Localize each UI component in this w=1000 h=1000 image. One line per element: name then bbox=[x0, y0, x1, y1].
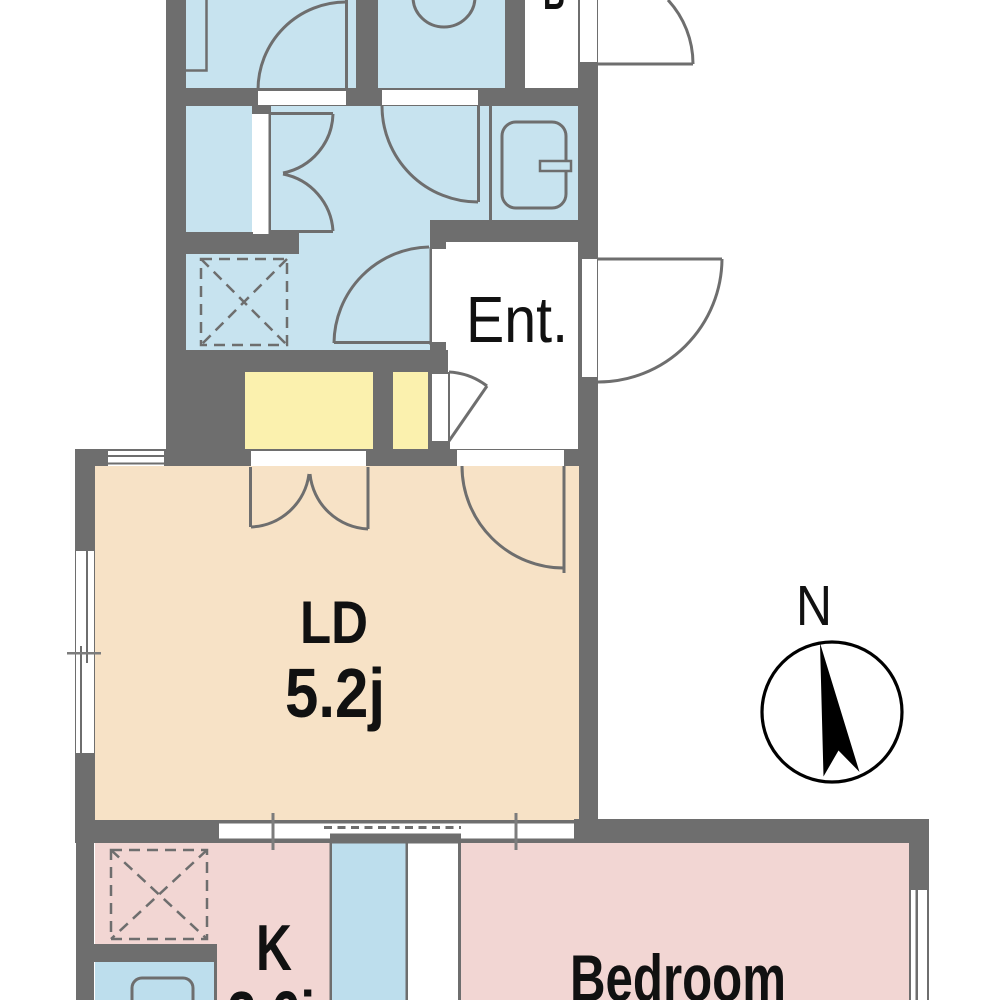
svg-text:Ent.: Ent. bbox=[466, 283, 568, 356]
svg-text:Bedroom: Bedroom bbox=[570, 941, 786, 1000]
svg-text:B: B bbox=[543, 0, 565, 19]
svg-text:2.6j: 2.6j bbox=[227, 977, 315, 1000]
svg-text:K: K bbox=[256, 911, 292, 984]
svg-text:N: N bbox=[796, 574, 832, 638]
svg-text:LD: LD bbox=[300, 589, 368, 656]
svg-text:5.2j: 5.2j bbox=[285, 654, 385, 732]
